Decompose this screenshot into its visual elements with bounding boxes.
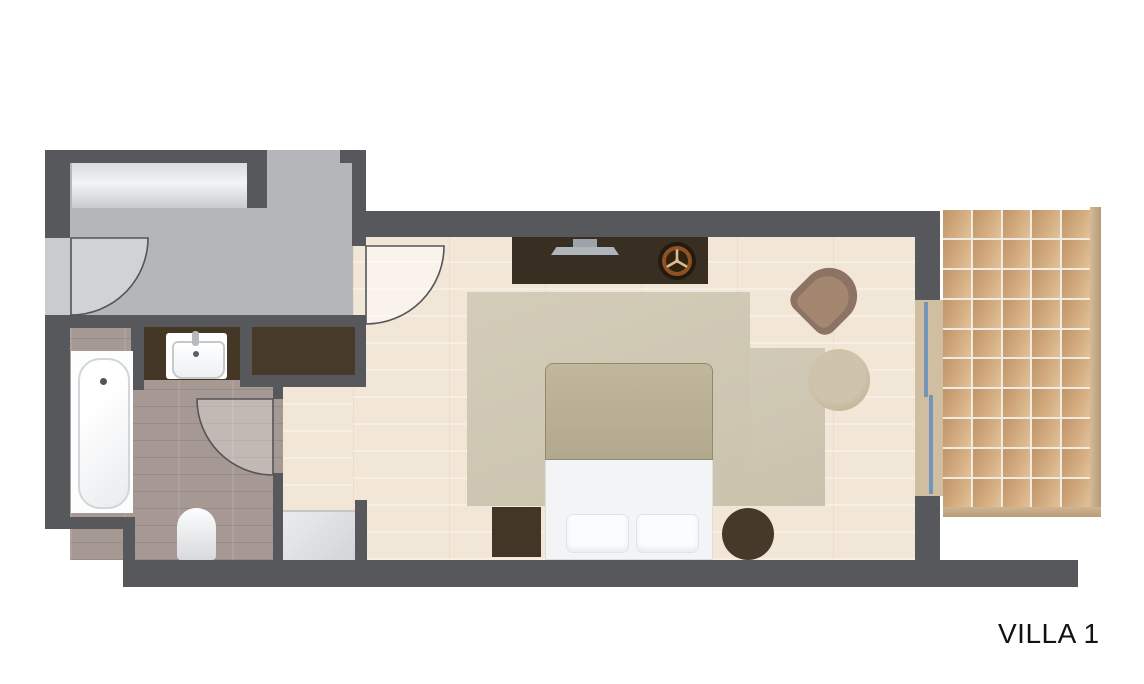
terrace-tile [973, 359, 1001, 387]
terrace-tile [973, 449, 1001, 477]
terrace-border-right [1090, 207, 1101, 517]
pillow-right [636, 514, 699, 553]
terrace-tile [1032, 449, 1060, 477]
square-nightstand [492, 507, 541, 557]
wall-bedroom-right-upper [915, 211, 940, 300]
terrace-tile [1003, 419, 1031, 447]
bathroom-access-nook-floor [283, 387, 353, 513]
terrace-tile [1003, 270, 1031, 298]
wall-bedroom-right-lower [915, 495, 940, 560]
wall-stub-closet [247, 150, 267, 208]
wall-corner-entrance-ne [340, 150, 366, 163]
terrace-tile [943, 210, 971, 238]
bathtub-drain-icon [100, 378, 107, 385]
terrace-tile [1062, 449, 1090, 477]
terrace-tile [943, 389, 971, 417]
terrace-tile [1062, 210, 1090, 238]
terrace-tile [973, 330, 1001, 358]
sliding-door-glass-panel-2 [929, 395, 933, 494]
terrace-tile [943, 479, 971, 507]
terrace-tile [973, 210, 1001, 238]
wall-bath-east-upper [273, 387, 283, 399]
terrace-tile [943, 240, 971, 268]
plan-title: VILLA 1 [998, 618, 1100, 650]
terrace-tile [1062, 300, 1090, 328]
terrace-tile [1003, 300, 1031, 328]
terrace-tile [1003, 389, 1031, 417]
wall-top-entrance [45, 150, 267, 163]
terrace-tile [1032, 300, 1060, 328]
terrace-tile [1062, 479, 1090, 507]
sink-bowl [172, 341, 225, 379]
shower [283, 510, 355, 560]
sink-faucet-icon [192, 331, 199, 346]
round-nightstand [722, 508, 774, 560]
terrace-tile [973, 300, 1001, 328]
terrace-tile [973, 270, 1001, 298]
terrace-tile [1032, 240, 1060, 268]
wall-shower-east [355, 500, 367, 560]
wall-bath-east-lower [273, 473, 283, 560]
terrace-tile [943, 300, 971, 328]
terrace-tile [1003, 210, 1031, 238]
terrace-border-bottom [943, 507, 1101, 517]
terrace-tile [1032, 359, 1060, 387]
bed-blanket [545, 363, 713, 460]
terrace-tile [1003, 449, 1031, 477]
terrace-tile [1062, 270, 1090, 298]
terrace-tile [1032, 479, 1060, 507]
terrace-tile [1032, 389, 1060, 417]
terrace-tile [1003, 359, 1031, 387]
terrace-tile [1062, 389, 1090, 417]
terrace-tile [1003, 330, 1031, 358]
terrace-tile [1032, 210, 1060, 238]
wall-below-wardrobe [250, 375, 357, 387]
terrace-tile [943, 449, 971, 477]
wall-bottom-main [123, 560, 1078, 587]
tv [551, 247, 619, 255]
terrace-tile [973, 389, 1001, 417]
terrace-tile [1062, 419, 1090, 447]
terrace-tile [1003, 479, 1031, 507]
pillow-left [566, 514, 629, 553]
terrace-tile [1032, 330, 1060, 358]
terrace-tile [943, 419, 971, 447]
toilet [177, 508, 216, 560]
terrace-tiles [943, 210, 1090, 507]
terrace-tile [1032, 419, 1060, 447]
terrace-tile [943, 330, 971, 358]
wall-bath-sw-step [45, 517, 135, 529]
terrace-tile [973, 240, 1001, 268]
terrace-tile [1062, 359, 1090, 387]
terrace-tile [1062, 240, 1090, 268]
closet [72, 163, 247, 208]
entry-door-opening [45, 238, 70, 315]
terrace-tile [943, 359, 971, 387]
terrace-tile [1032, 270, 1060, 298]
built-in-wardrobe [252, 327, 355, 375]
terrace-tile [973, 419, 1001, 447]
wall-left-lower [45, 315, 70, 529]
terrace-tile [1003, 240, 1031, 268]
decorative-fan-icon [655, 239, 699, 283]
terrace-tile [973, 479, 1001, 507]
terrace-tile [943, 270, 971, 298]
wall-bedroom-top [352, 211, 940, 237]
sliding-door-glass-panel-1 [924, 302, 928, 397]
terrace-tile [1062, 330, 1090, 358]
tv-mount [573, 239, 597, 247]
floor-plan-villa-1: VILLA 1 [0, 0, 1144, 684]
sink-drain-icon [193, 351, 199, 357]
round-side-table [808, 349, 870, 411]
wall-left-upper [45, 150, 70, 238]
